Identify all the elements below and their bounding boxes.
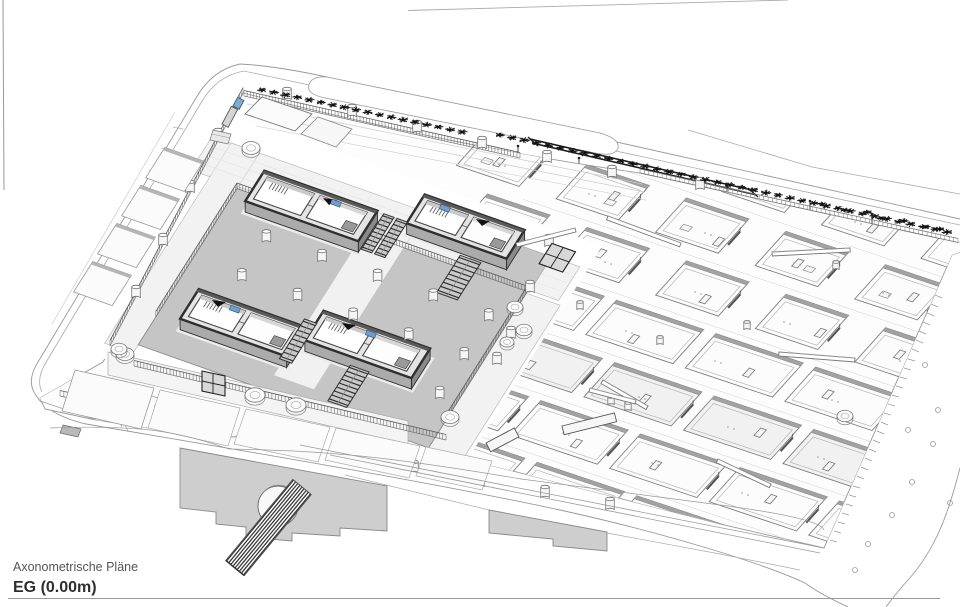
svg-text:EG (0.00m): EG (0.00m) bbox=[13, 579, 97, 596]
svg-text:Axonometrische Pläne: Axonometrische Pläne bbox=[13, 560, 138, 574]
